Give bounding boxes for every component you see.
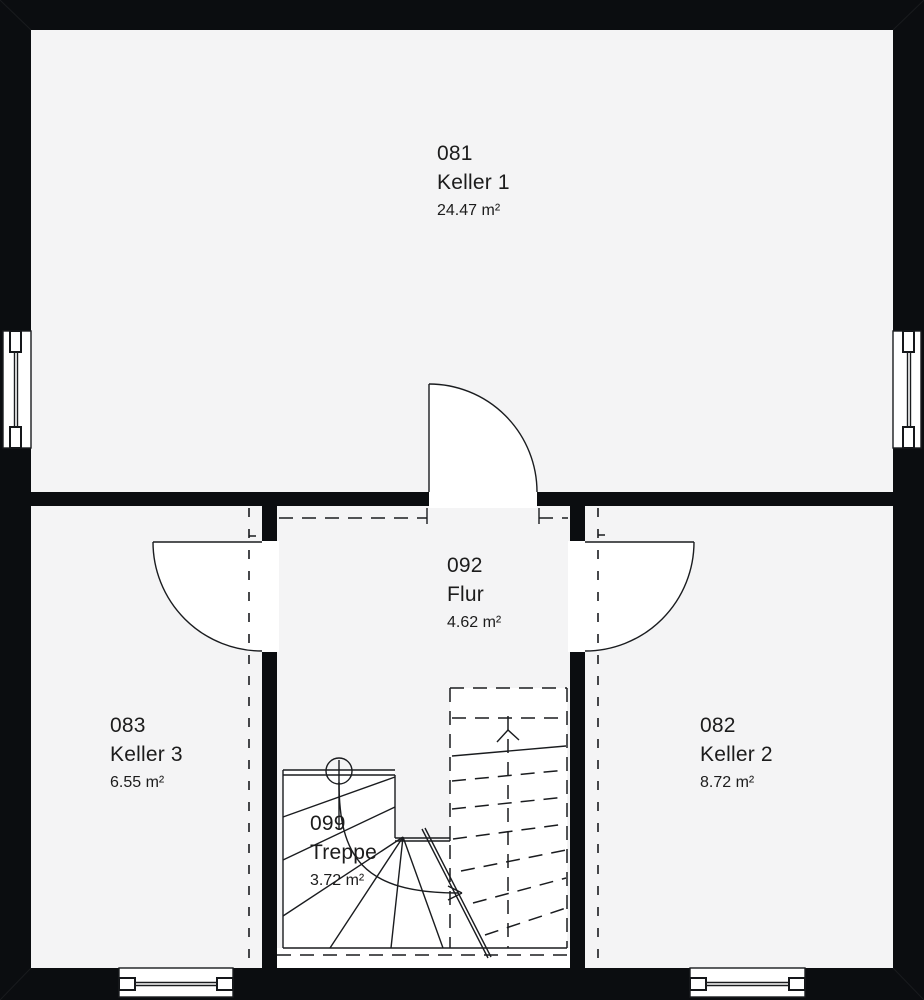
room-label-keller3: 083 Keller 3 6.55 m² (110, 711, 183, 796)
room-number: 083 (110, 711, 183, 740)
threshold-left-door (260, 541, 279, 652)
basement-floor-plan: 081 Keller 1 24.47 m² 092 Flur 4.62 m² 0… (0, 0, 924, 1000)
room-number: 081 (437, 139, 510, 168)
room-label-treppe: 099 Treppe 3.72 m² (310, 809, 377, 894)
room-label-keller1: 081 Keller 1 24.47 m² (437, 139, 510, 224)
room-name: Flur (447, 580, 501, 609)
room-area: 24.47 m² (437, 197, 510, 224)
room-name: Treppe (310, 838, 377, 867)
threshold-top-door (429, 490, 537, 508)
room-area: 3.72 m² (310, 867, 377, 894)
room-name: Keller 3 (110, 740, 183, 769)
room-area: 6.55 m² (110, 769, 183, 796)
window-bottom-left (119, 968, 233, 997)
room-area: 4.62 m² (447, 609, 501, 636)
room-number: 099 (310, 809, 377, 838)
window-bottom-right (690, 968, 805, 997)
room-number: 082 (700, 711, 773, 740)
room-number: 092 (447, 551, 501, 580)
threshold-right-door (568, 541, 587, 652)
room-name: Keller 2 (700, 740, 773, 769)
window-right (893, 331, 921, 448)
room-label-keller2: 082 Keller 2 8.72 m² (700, 711, 773, 796)
room-label-flur: 092 Flur 4.62 m² (447, 551, 501, 636)
room-name: Keller 1 (437, 168, 510, 197)
room-area: 8.72 m² (700, 769, 773, 796)
window-left (3, 331, 31, 448)
